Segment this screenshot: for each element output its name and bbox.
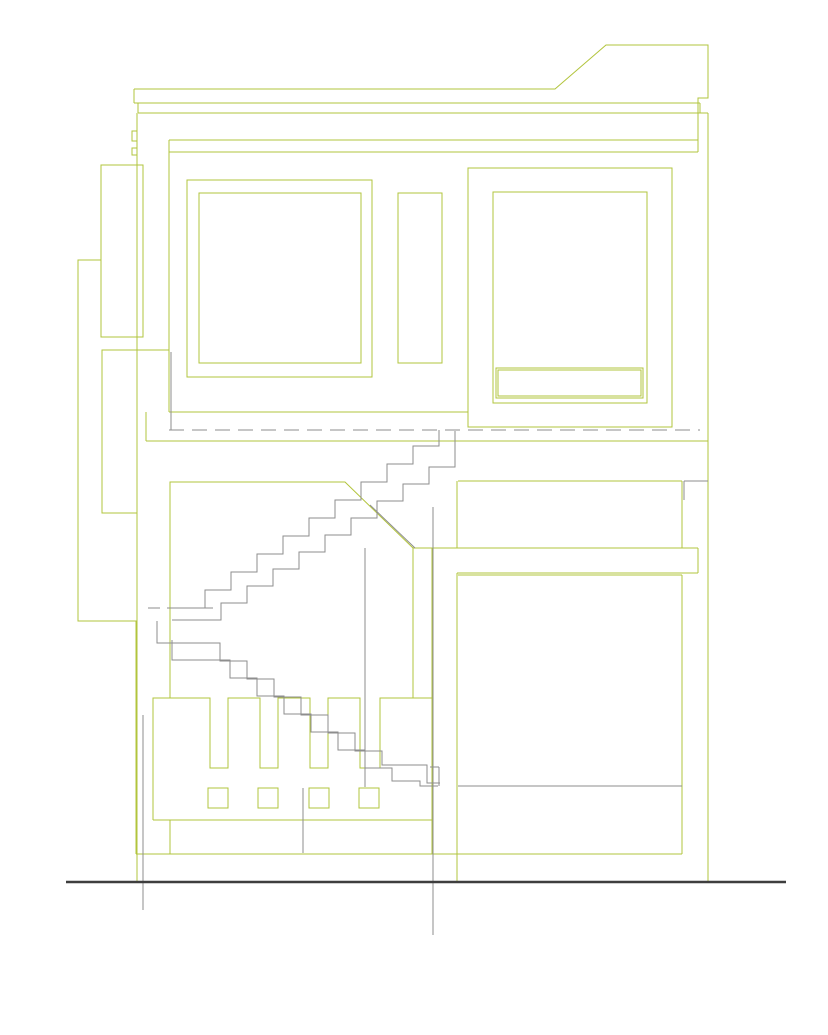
stair-section-layer	[143, 352, 708, 935]
drawing-page	[0, 0, 828, 1035]
elevation-drawing	[0, 0, 828, 1035]
